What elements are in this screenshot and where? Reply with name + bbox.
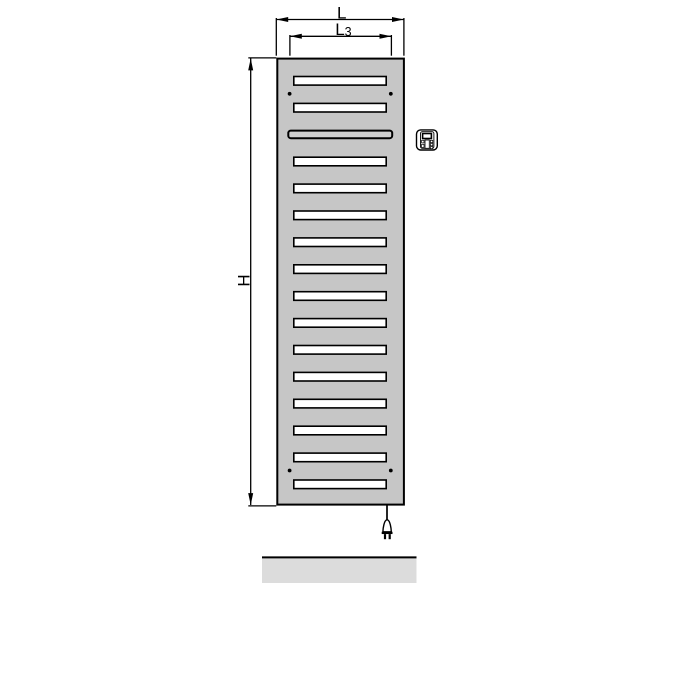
svg-text:L3: L3 bbox=[335, 20, 351, 39]
svg-text:H: H bbox=[234, 274, 253, 286]
